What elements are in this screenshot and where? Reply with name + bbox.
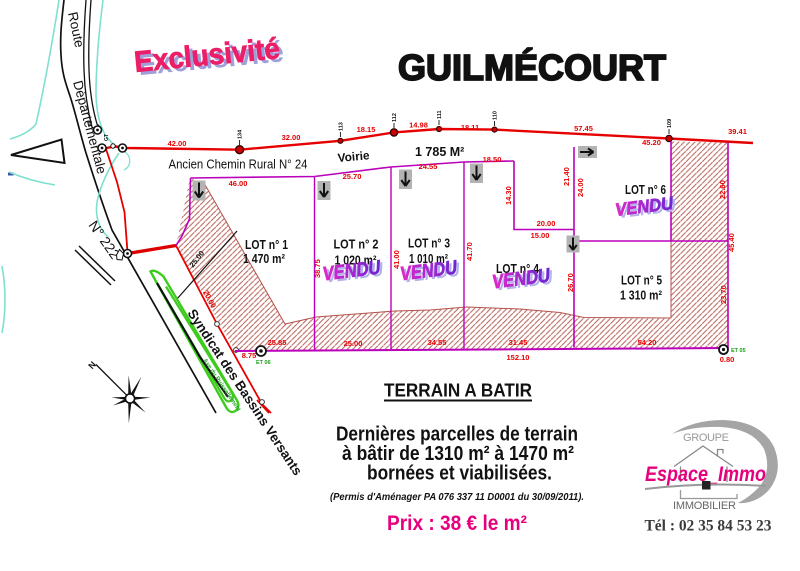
svg-text:31.45: 31.45 (509, 338, 528, 347)
svg-text:Tél : 02 35 84 53 23: Tél : 02 35 84 53 23 (645, 518, 772, 535)
svg-text:38.75: 38.75 (313, 259, 322, 278)
svg-text:134: 134 (238, 129, 244, 139)
svg-text:24.00: 24.00 (576, 178, 585, 197)
svg-text:GUILMÉCOURT: GUILMÉCOURT (398, 47, 666, 88)
svg-text:22.60: 22.60 (718, 180, 727, 199)
svg-text:23.70: 23.70 (719, 285, 728, 304)
svg-text:20.00: 20.00 (537, 219, 556, 228)
svg-text:1 310 m²: 1 310 m² (620, 288, 663, 303)
svg-text:ET 05: ET 05 (731, 348, 746, 354)
svg-text:14.98: 14.98 (409, 121, 428, 130)
svg-text:Ancien Chemin Rural N° 24: Ancien Chemin Rural N° 24 (169, 158, 308, 172)
svg-text:bornées et viabilisées.: bornées et viabilisées. (367, 462, 552, 485)
svg-text:LOT n° 5: LOT n° 5 (621, 273, 662, 288)
svg-text:109: 109 (667, 119, 673, 128)
svg-text:1 785 M²: 1 785 M² (415, 145, 464, 159)
svg-text:45.40: 45.40 (727, 233, 736, 252)
svg-text:112: 112 (392, 113, 398, 122)
svg-text:TERRAIN A BATIR: TERRAIN A BATIR (384, 380, 532, 401)
svg-text:Prix : 38 € le m²: Prix : 38 € le m² (387, 512, 527, 535)
svg-text:(Permis d'Aménager PA 076 337: (Permis d'Aménager PA 076 337 11 D0001 d… (330, 491, 584, 503)
svg-text:18.15: 18.15 (357, 125, 376, 134)
svg-text:39.41: 39.41 (728, 127, 747, 136)
svg-text:0.80: 0.80 (720, 355, 735, 364)
svg-text:25.85: 25.85 (268, 338, 287, 347)
svg-text:110: 110 (493, 111, 499, 120)
svg-text:15.00: 15.00 (531, 231, 550, 240)
svg-text:1 470 m²: 1 470 m² (243, 251, 286, 266)
svg-text:26.70: 26.70 (566, 273, 575, 292)
svg-text:152.10: 152.10 (507, 353, 530, 362)
svg-text:113: 113 (338, 122, 344, 131)
svg-text:LOT n° 1: LOT n° 1 (245, 237, 288, 252)
svg-text:111: 111 (437, 110, 443, 119)
svg-text:18.11: 18.11 (461, 123, 479, 132)
svg-text:25.70: 25.70 (343, 172, 362, 181)
svg-text:GROUPE: GROUPE (683, 432, 729, 444)
svg-text:32.00: 32.00 (282, 133, 301, 142)
svg-text:ET 06: ET 06 (256, 360, 271, 366)
svg-text:45.20: 45.20 (642, 138, 661, 147)
svg-text:42.00: 42.00 (168, 139, 187, 148)
svg-text:GT: GT (104, 134, 110, 141)
svg-text:LOT n° 3: LOT n° 3 (408, 236, 450, 251)
svg-text:57.45: 57.45 (574, 124, 593, 133)
svg-text:41.70: 41.70 (465, 242, 474, 261)
svg-text:21.40: 21.40 (562, 167, 571, 186)
svg-text:8.75: 8.75 (242, 351, 257, 360)
svg-text:25.00: 25.00 (344, 339, 363, 348)
svg-text:Voirie: Voirie (337, 148, 370, 165)
svg-text:54.20: 54.20 (638, 338, 657, 347)
svg-text:89: 89 (88, 120, 94, 126)
svg-text:46.00: 46.00 (229, 179, 248, 188)
svg-text:24.55: 24.55 (419, 162, 438, 171)
svg-text:LOT n° 2: LOT n° 2 (334, 237, 379, 252)
svg-text:18.50: 18.50 (483, 155, 502, 164)
svg-text:IMMOBILIER: IMMOBILIER (673, 500, 736, 512)
svg-text:14.30: 14.30 (504, 186, 513, 205)
svg-text:34.55: 34.55 (428, 338, 447, 347)
